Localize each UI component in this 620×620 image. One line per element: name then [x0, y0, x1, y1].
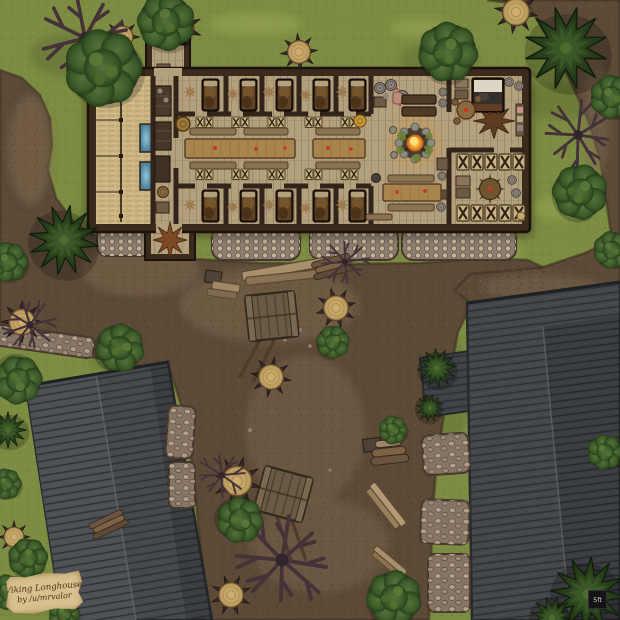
fur-bed [349, 79, 366, 111]
stool [475, 96, 482, 103]
keg [277, 169, 285, 180]
barrel [439, 88, 447, 96]
fur-bed [276, 79, 293, 111]
cabinet [155, 156, 170, 182]
barrel [438, 172, 446, 180]
bench [402, 107, 436, 116]
cabinet [155, 86, 171, 116]
keg [314, 117, 322, 128]
keg [205, 169, 213, 180]
weapon-rack [513, 154, 525, 170]
keg [305, 169, 313, 180]
basket [158, 187, 169, 198]
stool [452, 99, 459, 106]
sack [393, 92, 402, 104]
weapon-rack [485, 154, 497, 170]
bench [190, 162, 236, 169]
barrel [439, 99, 447, 107]
keg [232, 117, 240, 128]
barrel [508, 176, 517, 185]
map-canvas [0, 0, 620, 620]
barrel [386, 80, 397, 91]
crate [374, 97, 386, 107]
water-trough [140, 124, 152, 152]
keg [196, 117, 204, 128]
bench [316, 128, 360, 135]
stool [517, 212, 525, 220]
weapon-rack [471, 154, 483, 170]
keg [196, 169, 204, 180]
keg [277, 117, 285, 128]
weapon-rack [499, 154, 511, 170]
fur-bed [202, 190, 219, 222]
crate [455, 90, 468, 99]
water-trough [140, 162, 152, 190]
keg [232, 169, 240, 180]
keg [350, 169, 358, 180]
keg [268, 117, 276, 128]
long-table [313, 139, 365, 158]
bench [190, 128, 236, 135]
fur-bed [313, 79, 330, 111]
bench [244, 162, 288, 169]
cooking-pot [389, 126, 396, 133]
scale-label: 5ft [593, 596, 602, 604]
fox-pelt [153, 222, 187, 259]
fur-bed [313, 190, 330, 222]
fur-bed [349, 190, 366, 222]
stone-wall-southeast [420, 432, 470, 612]
weapon-rack [485, 205, 497, 221]
weapon-rack [471, 205, 483, 221]
cabinet [155, 122, 171, 150]
barrel [505, 78, 514, 87]
bench [316, 162, 360, 169]
cooking-pot [391, 152, 398, 159]
central-fire-pit [389, 117, 441, 169]
bench [402, 95, 436, 104]
fur-bed [202, 79, 219, 111]
keg [268, 169, 276, 180]
keg [341, 117, 349, 128]
keg [314, 169, 322, 180]
viking-longhouse-battle-map: Viking Longhouse by /u/mrvalor 5ft [0, 0, 620, 620]
keg [205, 117, 213, 128]
scale-badge: 5ft [588, 590, 607, 609]
gold-shield [354, 115, 366, 127]
keg [305, 117, 313, 128]
barrel [437, 203, 446, 212]
barrel [512, 189, 521, 198]
crate [456, 188, 470, 198]
crate [437, 158, 448, 170]
barrel [515, 82, 524, 91]
crate [456, 176, 470, 186]
pot [372, 174, 381, 183]
fur-bed [276, 190, 293, 222]
keg [241, 117, 249, 128]
stool [454, 118, 461, 125]
barrel [375, 83, 386, 94]
keg [241, 169, 249, 180]
weapon-rack [457, 154, 469, 170]
bench [244, 128, 288, 135]
keg [341, 169, 349, 180]
fur-bed [240, 190, 257, 222]
weapon-rack [499, 205, 511, 221]
crate [156, 202, 169, 213]
bench [388, 204, 434, 211]
weapon-rack [457, 205, 469, 221]
round-shield [176, 117, 190, 131]
fur-bed [240, 79, 257, 111]
bench [388, 175, 434, 182]
bench [366, 214, 392, 220]
long-table [185, 139, 295, 158]
stone-wall-southwest [165, 405, 196, 508]
